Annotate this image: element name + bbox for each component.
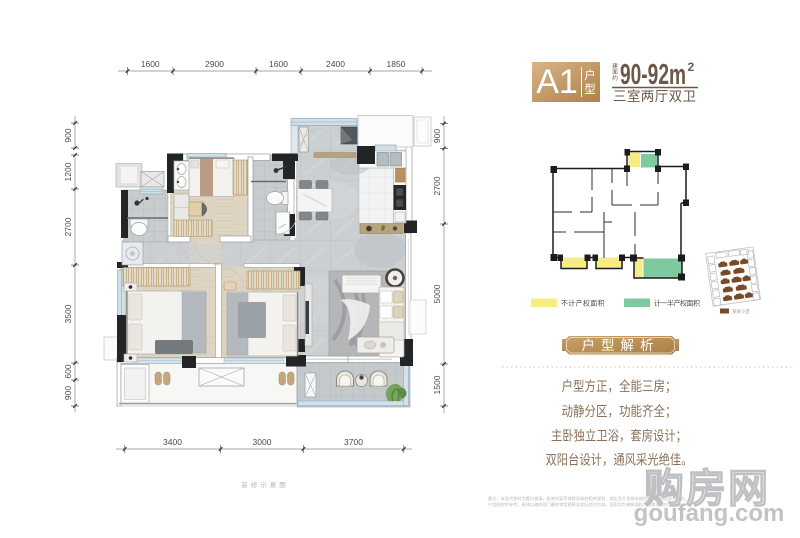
svg-text:2400: 2400: [326, 59, 345, 69]
svg-text:三室两厅双卫: 三室两厅双卫: [613, 88, 696, 104]
svg-text:600: 600: [63, 364, 73, 378]
svg-text:动静分区，功能齐全；: 动静分区，功能齐全；: [562, 403, 677, 420]
svg-text:户型方正，全能三房；: 户型方正，全能三房；: [562, 378, 677, 395]
svg-text:1600: 1600: [141, 59, 160, 69]
svg-text:型: 型: [584, 82, 596, 96]
svg-text:2700: 2700: [63, 217, 73, 236]
svg-text:1200: 1200: [63, 162, 73, 181]
svg-text:1600: 1600: [269, 59, 288, 69]
svg-text:户型解析: 户型解析: [582, 337, 660, 353]
svg-text:不计产权面积: 不计产权面积: [561, 299, 605, 308]
svg-text:3000: 3000: [253, 437, 272, 447]
svg-text:2900: 2900: [205, 59, 224, 69]
svg-text:主卧独立卫浴，套房设计；: 主卧独立卫浴，套房设计；: [551, 429, 687, 445]
svg-text:建: 建: [612, 62, 618, 70]
svg-text:1850: 1850: [387, 59, 406, 69]
svg-text:3700: 3700: [344, 437, 363, 447]
svg-text:计一半产权面积: 计一半产权面积: [654, 299, 700, 308]
svg-text:某某小区: 某某小区: [732, 308, 750, 315]
svg-text:面: 面: [612, 69, 618, 76]
svg-text:3500: 3500: [63, 304, 73, 323]
svg-text:3400: 3400: [163, 437, 182, 447]
svg-text:A1: A1: [536, 63, 578, 101]
svg-text:90-92m: 90-92m: [620, 59, 686, 91]
svg-text:900: 900: [432, 129, 442, 143]
svg-text:5000: 5000: [432, 284, 442, 303]
svg-text:1500: 1500: [432, 375, 442, 394]
svg-text:约: 约: [612, 74, 618, 82]
svg-text:2700: 2700: [432, 176, 442, 195]
svg-text:900: 900: [63, 386, 73, 400]
svg-text:装修示意图: 装修示意图: [241, 480, 289, 489]
svg-text:900: 900: [63, 128, 73, 142]
svg-text:户: 户: [584, 68, 596, 82]
svg-text:2: 2: [688, 60, 695, 74]
svg-text:双阳台设计，通风采光绝佳。: 双阳台设计，通风采光绝佳。: [546, 453, 693, 468]
svg-text:goufang.com: goufang.com: [634, 500, 785, 527]
